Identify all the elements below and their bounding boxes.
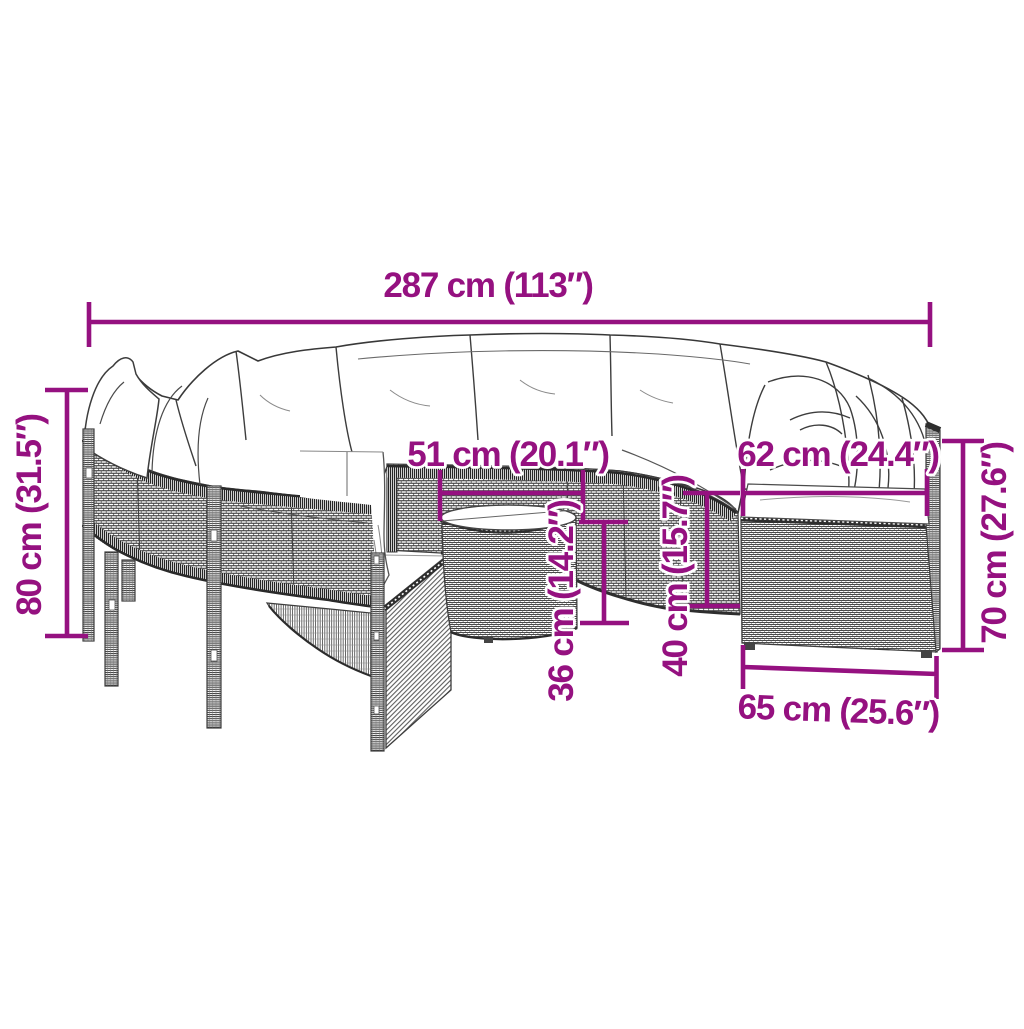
svg-text:36 cm (14.2″): 36 cm (14.2″) [542, 500, 581, 702]
svg-text:287 cm (113″): 287 cm (113″) [383, 266, 592, 305]
svg-text:51 cm (20.1″): 51 cm (20.1″) [407, 435, 609, 474]
svg-text:70 cm (27.6″): 70 cm (27.6″) [975, 442, 1014, 644]
svg-text:65 cm (25.6″): 65 cm (25.6″) [737, 687, 940, 733]
svg-text:80 cm (31.5″): 80 cm (31.5″) [10, 414, 49, 616]
svg-text:62 cm (24.4″): 62 cm (24.4″) [737, 435, 939, 474]
svg-text:40 cm (15.7″): 40 cm (15.7″) [656, 475, 695, 677]
